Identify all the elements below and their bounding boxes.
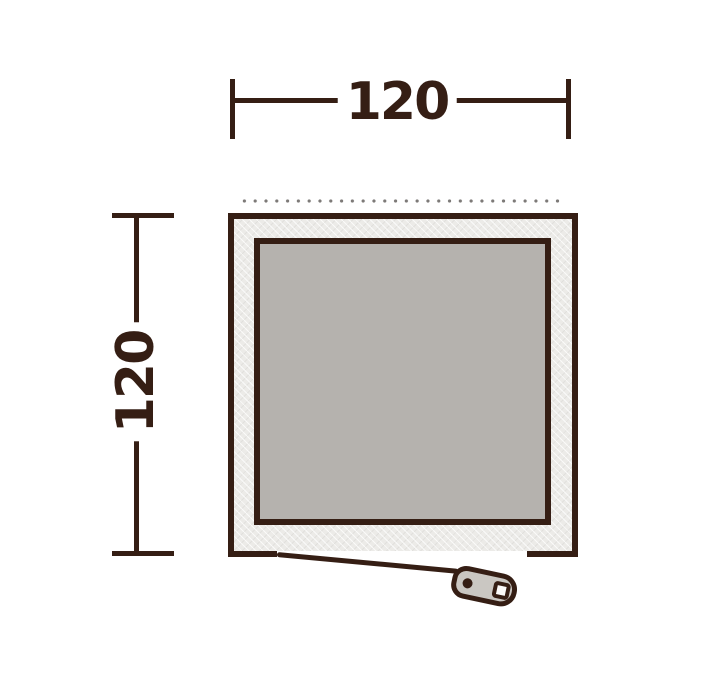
dimension-tick-top	[112, 213, 174, 218]
inner-floor-area	[254, 238, 551, 525]
zipper-pull-icon	[449, 563, 520, 609]
tent-floorplan-diagram: 120 120	[0, 0, 707, 682]
dimension-tick-bottom	[112, 551, 174, 556]
dimension-tick-right	[566, 79, 571, 139]
dotted-edge-line	[239, 198, 563, 204]
dimension-tick-left	[230, 79, 235, 139]
zipper-pull-hole	[491, 580, 511, 600]
depth-dimension-label: 120	[110, 323, 162, 442]
width-dimension-label: 120	[338, 76, 457, 128]
